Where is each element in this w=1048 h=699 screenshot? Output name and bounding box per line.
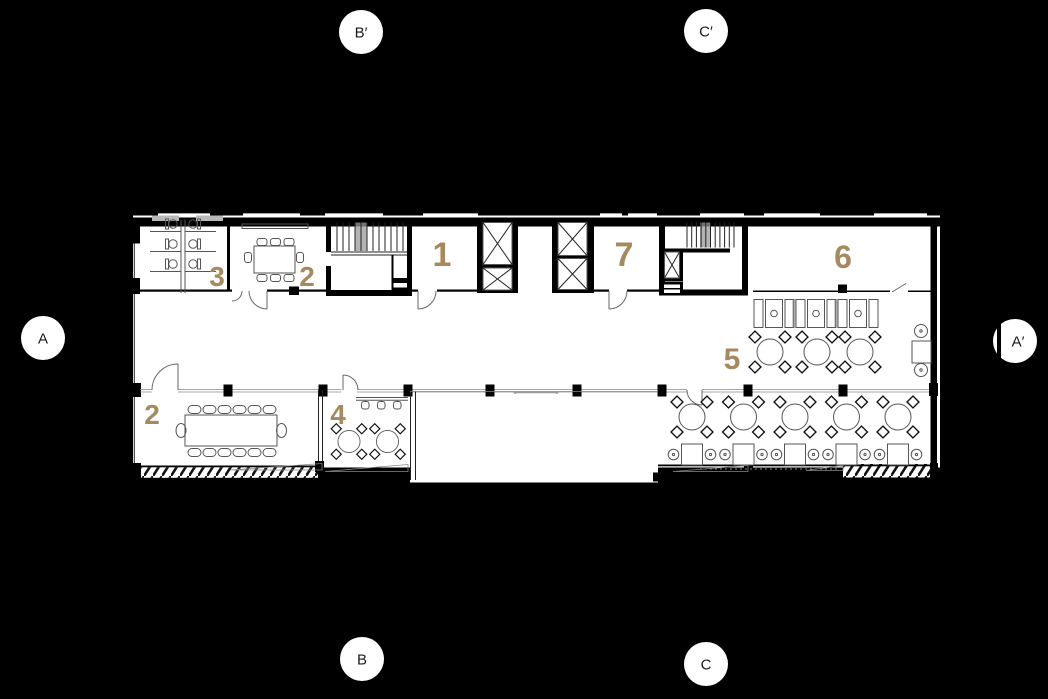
svg-text:B′: B′ xyxy=(355,25,368,42)
elevator-icon xyxy=(558,223,587,256)
svg-text:B: B xyxy=(357,652,367,669)
exterior-wall-top xyxy=(133,218,940,227)
partition-wall xyxy=(227,218,230,292)
section-marker-c: C xyxy=(684,642,728,686)
hatch-left xyxy=(133,467,318,478)
room-label-4: 4 xyxy=(330,399,346,430)
room-label-1: 1 xyxy=(433,236,452,274)
column xyxy=(224,385,233,397)
floor-plan-canvas: 3 2 1 7 6 5 2 4 B′ C′ A A′ B xyxy=(0,0,1048,699)
elevator-icon xyxy=(483,268,512,290)
elevator-icon xyxy=(558,259,587,290)
floor-plan: 3 2 1 7 6 5 2 4 xyxy=(133,215,940,483)
section-marker-a: A xyxy=(21,316,65,360)
room-label-5: 5 xyxy=(724,343,741,376)
svg-text:A: A xyxy=(38,331,48,348)
booth-seating-row xyxy=(754,300,878,328)
column xyxy=(486,385,495,397)
svg-text:C: C xyxy=(701,657,712,674)
section-marker-b: B xyxy=(340,637,384,681)
elevator-core-b xyxy=(552,218,594,294)
section-marker-c-prime: C′ xyxy=(684,9,728,53)
column xyxy=(839,385,848,397)
elevator-icon xyxy=(483,223,512,265)
room-label-6: 6 xyxy=(834,239,852,275)
elevator-icon xyxy=(665,252,680,278)
room-label-2-lower: 2 xyxy=(144,399,160,430)
svg-text:C′: C′ xyxy=(699,24,713,41)
section-line xyxy=(997,317,1001,365)
column xyxy=(658,385,667,397)
room-label-2-upper: 2 xyxy=(299,261,315,292)
booth-icon xyxy=(796,300,836,328)
column xyxy=(573,385,582,397)
column xyxy=(744,385,753,397)
booth-icon xyxy=(754,300,794,328)
svg-text:A′: A′ xyxy=(1012,334,1025,351)
room-label-3: 3 xyxy=(209,261,225,292)
elevator-core-a xyxy=(477,218,518,294)
section-marker-b-prime: B′ xyxy=(339,10,383,54)
booth-icon xyxy=(838,300,878,328)
room-label-7: 7 xyxy=(615,236,634,274)
entrance-forecourt xyxy=(410,391,658,483)
column xyxy=(404,385,413,397)
